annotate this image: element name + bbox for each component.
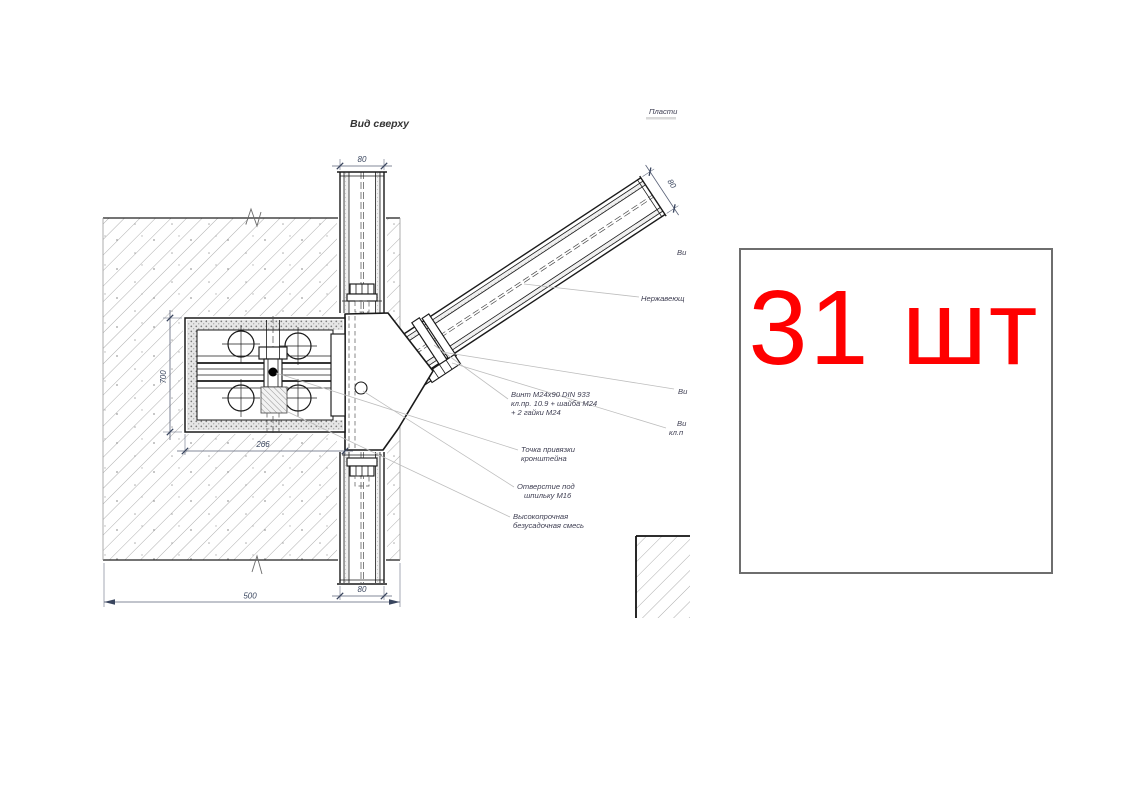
edge-label-view2: Ви	[678, 387, 688, 396]
bracket-assembly	[185, 316, 345, 436]
dim-label-diagonal-80: 80	[666, 178, 679, 191]
view-title: Вид сверху	[350, 118, 410, 130]
dim-bottom-beam: 80	[332, 585, 392, 600]
annotation-screw-line3: + 2 гайки М24	[511, 408, 561, 417]
annotation-screw-line2: кл.пр. 10.9 + шайба М24	[511, 399, 597, 408]
annotation-screw-line1: Винт М24х90 DIN 933	[511, 390, 591, 399]
bracket-end-plate	[331, 334, 345, 416]
dim-label-266: 266	[255, 440, 270, 449]
edge-label-plate-subline	[646, 117, 676, 120]
dim-top-beam: 80	[332, 155, 392, 170]
drawing-canvas: 80	[0, 0, 1123, 794]
dim-label-top-80: 80	[358, 155, 367, 164]
dim-wall-width: 500	[104, 563, 400, 607]
quantity-text: 31 шт	[749, 269, 1040, 387]
callout-annotations: Винт М24х90 DIN 933 кл.пр. 10.9 + шайба …	[511, 390, 597, 530]
dim-label-500: 500	[243, 592, 257, 601]
annotation-hole-line2: шпильку М16	[524, 491, 572, 500]
edge-label-stainless: Нержавеющ	[641, 294, 685, 303]
edge-label-view3: Ви	[677, 419, 687, 428]
annotation-anchor-line2: кронштейна	[521, 454, 567, 463]
concrete-block-lower-right	[636, 536, 690, 618]
edge-label-view1: Ви	[677, 248, 687, 257]
annotation-grout-line1: Высокопрочная	[513, 512, 568, 521]
quantity-callout: 31 шт	[740, 249, 1052, 573]
technical-drawing: 80	[0, 0, 1123, 794]
bracket-anchor-point	[269, 368, 278, 377]
dim-label-700: 700	[159, 370, 168, 384]
annotation-hole-line1: Отверстие под	[517, 482, 575, 491]
dim-diagonal-width: 80	[638, 156, 692, 220]
dim-label-bottom-80: 80	[358, 585, 367, 594]
grout-zone	[261, 387, 287, 413]
diagonal-beam: 80	[391, 156, 694, 386]
edge-label-class: кл.п	[669, 428, 684, 437]
annotation-grout-line2: безусадочная смесь	[513, 521, 584, 530]
annotation-anchor-line1: Точка привязки	[521, 445, 576, 454]
edge-label-plate: Пласти	[649, 107, 678, 116]
